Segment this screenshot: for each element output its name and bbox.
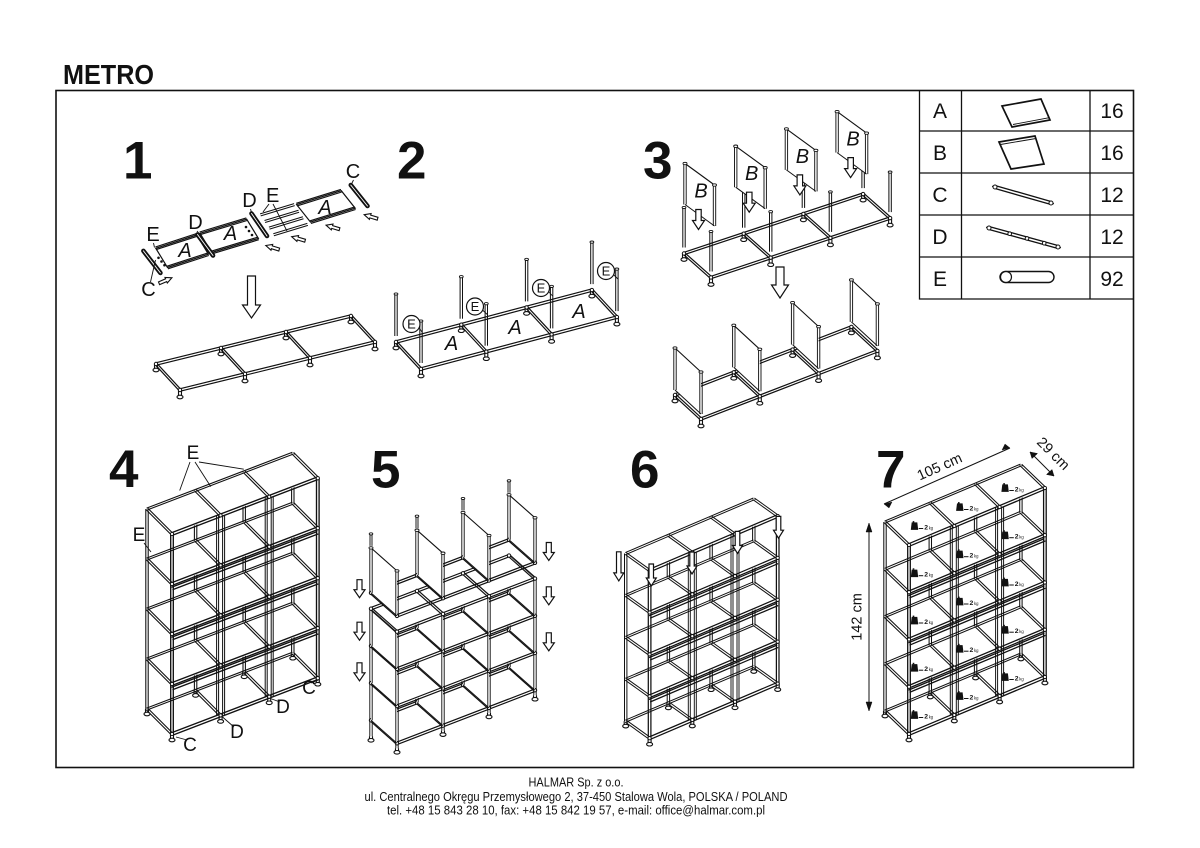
svg-text:7: 7 — [876, 441, 905, 500]
svg-text:2: 2 — [924, 524, 928, 531]
svg-text:2: 2 — [924, 619, 928, 626]
svg-text:kg: kg — [974, 601, 979, 606]
svg-text:kg: kg — [929, 573, 934, 578]
svg-text:kg: kg — [974, 554, 979, 559]
svg-text:C: C — [141, 279, 155, 301]
svg-text:2: 2 — [1015, 675, 1019, 682]
svg-text:D: D — [276, 697, 290, 718]
svg-text:E: E — [266, 185, 279, 207]
svg-text:A: A — [444, 333, 458, 355]
svg-text:2: 2 — [970, 505, 974, 512]
svg-text:3: 3 — [643, 132, 672, 191]
svg-text:E: E — [407, 317, 416, 332]
svg-text:kg: kg — [1019, 535, 1024, 540]
svg-text:2: 2 — [924, 713, 928, 720]
svg-text:E: E — [133, 525, 146, 546]
svg-text:tel. +48 15 843 28 10, fax: +4: tel. +48 15 843 28 10, fax: +48 15 842 1… — [387, 803, 765, 818]
svg-text:A: A — [571, 301, 585, 323]
svg-text:kg: kg — [929, 714, 934, 719]
svg-text:2: 2 — [970, 647, 974, 654]
svg-text:2: 2 — [924, 666, 928, 673]
svg-text:142 cm: 142 cm — [850, 593, 866, 641]
svg-text:C: C — [346, 161, 360, 183]
svg-text:6: 6 — [630, 441, 659, 500]
svg-text:E: E — [187, 443, 200, 464]
svg-text:A: A — [223, 223, 237, 245]
svg-text:2: 2 — [924, 572, 928, 579]
svg-text:2: 2 — [1015, 486, 1019, 493]
svg-text:12: 12 — [1100, 184, 1123, 207]
svg-text:E: E — [933, 268, 947, 291]
svg-text:16: 16 — [1100, 142, 1123, 165]
svg-text:92: 92 — [1100, 268, 1123, 291]
svg-text:E: E — [537, 281, 546, 296]
svg-text:2: 2 — [1015, 534, 1019, 541]
svg-text:C: C — [183, 735, 197, 756]
svg-text:16: 16 — [1100, 100, 1123, 123]
svg-text:A: A — [933, 100, 947, 123]
svg-text:B: B — [796, 146, 809, 168]
svg-text:2: 2 — [1015, 628, 1019, 635]
svg-text:kg: kg — [929, 525, 934, 530]
svg-text:C: C — [932, 184, 947, 207]
svg-text:4: 4 — [109, 440, 139, 499]
svg-text:E: E — [471, 299, 480, 314]
svg-text:C: C — [302, 678, 316, 699]
svg-text:5: 5 — [371, 441, 400, 500]
svg-text:2: 2 — [397, 132, 426, 191]
svg-text:kg: kg — [1019, 676, 1024, 681]
svg-text:kg: kg — [974, 506, 979, 511]
svg-text:A: A — [507, 317, 521, 339]
svg-text:D: D — [932, 226, 947, 249]
svg-text:kg: kg — [974, 695, 979, 700]
svg-text:2: 2 — [970, 553, 974, 560]
svg-text:B: B — [694, 181, 707, 203]
svg-text:D: D — [242, 190, 256, 212]
svg-text:E: E — [602, 264, 611, 279]
svg-text:B: B — [933, 142, 947, 165]
svg-text:HALMAR Sp. z o.o.: HALMAR Sp. z o.o. — [529, 775, 624, 790]
svg-text:METRO: METRO — [63, 59, 154, 90]
svg-text:2: 2 — [1015, 581, 1019, 588]
svg-text:2: 2 — [970, 694, 974, 701]
svg-text:B: B — [745, 163, 758, 185]
svg-text:A: A — [177, 240, 191, 262]
svg-text:kg: kg — [1019, 582, 1024, 587]
svg-text:2: 2 — [970, 600, 974, 607]
svg-text:1: 1 — [123, 132, 152, 191]
svg-text:kg: kg — [929, 620, 934, 625]
svg-text:A: A — [317, 197, 331, 219]
svg-text:kg: kg — [929, 667, 934, 672]
svg-text:B: B — [846, 129, 859, 151]
svg-text:D: D — [188, 212, 202, 234]
svg-text:E: E — [146, 224, 159, 246]
svg-text:12: 12 — [1100, 226, 1123, 249]
svg-text:kg: kg — [974, 648, 979, 653]
svg-text:kg: kg — [1019, 629, 1024, 634]
svg-text:kg: kg — [1019, 487, 1024, 492]
